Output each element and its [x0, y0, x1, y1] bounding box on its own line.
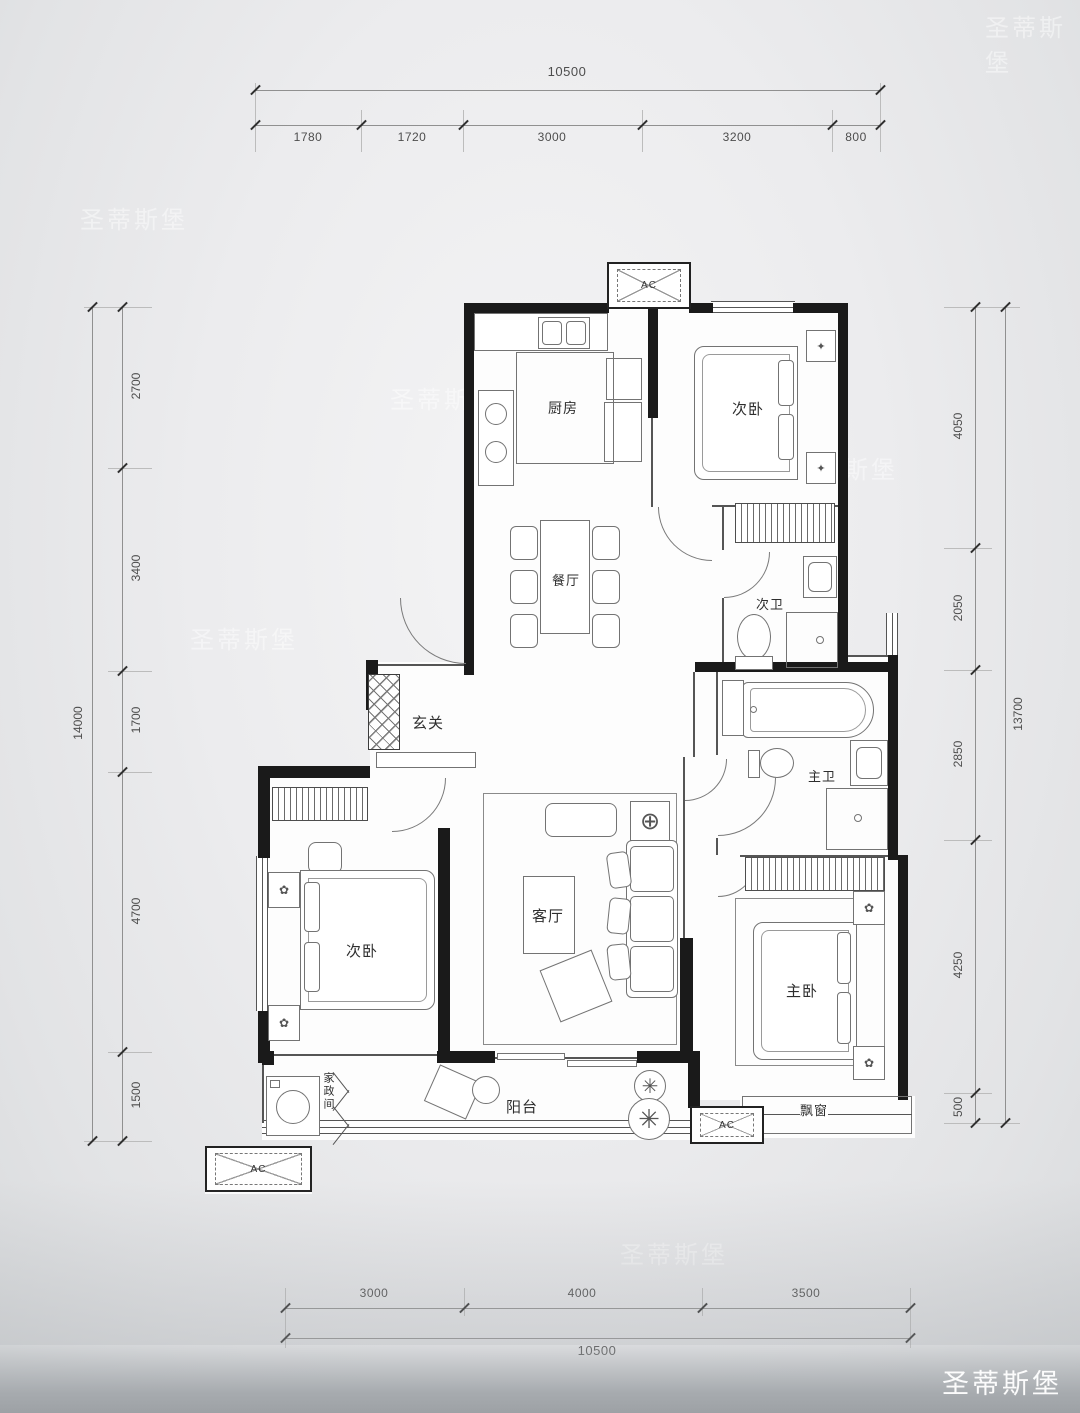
shower-area — [786, 612, 838, 668]
wardrobe — [735, 503, 835, 543]
dim-extension — [108, 1052, 152, 1053]
bottom-fade — [0, 1180, 1080, 1345]
dim-extension — [361, 110, 362, 152]
dim-left-seg: 2700 — [129, 356, 143, 416]
dim-extension — [108, 671, 152, 672]
pillow — [778, 414, 794, 460]
floorplan-canvas: 圣蒂斯堡 圣蒂斯堡 圣蒂斯堡 圣蒂斯堡 圣蒂斯堡 圣蒂斯堡 — [0, 0, 1080, 1413]
bath-cabinet — [722, 680, 744, 736]
dim-top-segment-line — [255, 125, 880, 126]
burner-icon — [485, 441, 507, 463]
dim-extension — [84, 307, 152, 308]
chair — [510, 526, 538, 560]
room-label-bath-master: 主卫 — [808, 766, 836, 785]
sink-basin — [808, 562, 832, 592]
room-label-bath-second: 次卫 — [756, 594, 784, 613]
sink-basin — [542, 321, 562, 345]
sofa-cushion — [630, 946, 674, 992]
bottom-bar — [0, 1345, 1080, 1413]
dim-top-seg: 800 — [826, 130, 886, 144]
toilet — [760, 748, 794, 778]
toilet — [737, 614, 771, 660]
pillow — [304, 882, 320, 932]
watermark-faint: 圣蒂斯堡 — [190, 620, 298, 655]
entry-door-arc — [400, 598, 466, 664]
bathtub-inner — [750, 688, 866, 732]
room-label-bedroom-master: 主卧 — [786, 980, 818, 1001]
wall-segment — [438, 828, 450, 1063]
dim-left-segment-line — [122, 307, 123, 1141]
dim-right-total-line — [1005, 307, 1006, 1123]
dim-right-total: 13700 — [1011, 674, 1025, 754]
drain-icon — [816, 636, 824, 644]
washing-machine-drum-icon — [276, 1090, 310, 1124]
dim-extension — [944, 670, 992, 671]
dim-right-seg: 4050 — [951, 396, 965, 456]
nightstand: ✦ — [806, 452, 836, 484]
dim-extension — [944, 548, 992, 549]
dim-extension — [944, 307, 1020, 308]
dim-top-seg: 1780 — [278, 130, 338, 144]
dim-extension — [108, 772, 152, 773]
wall-segment — [437, 1051, 495, 1063]
room-label-kitchen: 厨房 — [548, 398, 578, 418]
light-symbol-icon: ⊕ — [630, 801, 670, 841]
nightstand: ✿ — [268, 1005, 300, 1041]
burner-icon — [485, 403, 507, 425]
window-bedroom-top — [711, 301, 795, 313]
dim-right-seg: 4250 — [951, 935, 965, 995]
pillow — [304, 942, 320, 992]
shoe-cabinet — [368, 674, 400, 750]
sliding-door-leaf — [497, 1053, 565, 1060]
dim-left-total: 14000 — [71, 683, 85, 763]
chair — [592, 526, 620, 560]
wall-segment — [838, 303, 848, 672]
wardrobe — [745, 857, 885, 891]
chair — [592, 570, 620, 604]
window-bedroom-left — [256, 856, 268, 1011]
wardrobe — [272, 787, 368, 821]
sink-basin — [566, 321, 586, 345]
dim-extension — [108, 468, 152, 469]
wall-segment — [258, 766, 270, 858]
sofa-cushion — [630, 846, 674, 892]
wall-segment — [898, 855, 908, 1100]
nightstand: ✿ — [853, 891, 885, 925]
room-label-foyer: 玄关 — [412, 712, 444, 733]
wall-segment — [888, 655, 898, 860]
ac-label: AC — [700, 1113, 754, 1137]
room-label-bedroom-left: 次卧 — [346, 940, 378, 961]
room-label-laundry: 家政间 — [320, 1072, 336, 1111]
wall-segment — [262, 1054, 438, 1056]
plant-icon: ✳ — [628, 1098, 670, 1140]
chair — [592, 614, 620, 648]
ac-label: AC — [617, 269, 681, 302]
pillow — [837, 992, 851, 1044]
dim-left-total-line — [92, 307, 93, 1141]
throw-pillow — [606, 943, 632, 981]
wall-segment — [693, 672, 695, 757]
wall-segment — [716, 838, 718, 855]
wall-segment — [648, 303, 658, 418]
watermark-faint: 圣蒂斯堡 — [80, 200, 188, 235]
dim-top-total-line — [255, 90, 880, 91]
drain-icon — [854, 814, 862, 822]
nightstand: ✿ — [853, 1046, 885, 1080]
nightstand: ✿ — [268, 872, 300, 908]
watermark: 圣蒂斯堡 — [942, 1362, 1062, 1401]
wall-segment — [464, 303, 609, 313]
dim-right-seg: 2850 — [951, 724, 965, 784]
dim-extension — [642, 110, 643, 152]
window-bath-master — [886, 613, 898, 657]
dim-extension — [84, 1141, 152, 1142]
pillow — [778, 360, 794, 406]
toilet-tank — [748, 750, 760, 778]
ac-unit-top: AC — [607, 262, 691, 309]
nightstand: ✦ — [806, 330, 836, 362]
toilet-tank — [735, 656, 773, 670]
dim-top-total: 10500 — [527, 64, 607, 79]
foyer-bench — [376, 752, 476, 768]
throw-pillow — [606, 897, 632, 935]
wall-segment — [262, 1051, 274, 1065]
tv-console — [545, 803, 617, 837]
dim-extension — [944, 840, 992, 841]
wall-segment — [689, 303, 713, 313]
dim-left-seg: 3400 — [129, 538, 143, 598]
room-label-dining: 餐厅 — [552, 570, 580, 589]
dim-extension — [463, 110, 464, 152]
ac-unit-bottom-center: AC — [690, 1106, 764, 1144]
dim-right-seg: 2050 — [951, 578, 965, 638]
wall-segment — [722, 505, 724, 550]
pillow — [837, 932, 851, 984]
room-label-bay-window: 飘窗 — [800, 1100, 828, 1119]
dim-left-seg: 1700 — [129, 690, 143, 750]
watermark-faint: 圣蒂斯堡 — [985, 8, 1080, 78]
wall-segment — [848, 655, 888, 657]
wall-segment — [722, 598, 724, 662]
chair — [510, 570, 538, 604]
sofa-cushion — [630, 896, 674, 942]
dim-right-seg: 500 — [951, 1077, 965, 1137]
dim-left-seg: 1500 — [129, 1065, 143, 1125]
room-label-balcony: 阳台 — [506, 1096, 538, 1117]
room-label-bedroom-top: 次卧 — [732, 398, 764, 419]
wall-segment — [716, 672, 718, 755]
dim-left-seg: 4700 — [129, 881, 143, 941]
room-label-living: 客厅 — [532, 905, 564, 926]
sink-basin — [856, 747, 882, 779]
washer-panel — [270, 1080, 280, 1088]
chair — [510, 614, 538, 648]
wall-segment — [651, 415, 653, 507]
wall-segment — [262, 1063, 264, 1123]
dim-top-seg: 1720 — [382, 130, 442, 144]
dim-top-seg: 3000 — [522, 130, 582, 144]
dim-right-segment-line — [975, 307, 976, 1123]
sliding-door-leaf — [567, 1060, 637, 1067]
balcony-table — [472, 1076, 500, 1104]
wall-segment — [378, 664, 464, 666]
dim-top-seg: 3200 — [707, 130, 767, 144]
wall-segment — [680, 938, 693, 1063]
faucet-icon — [750, 706, 757, 713]
dim-extension — [255, 83, 256, 152]
wall-segment — [262, 766, 370, 778]
